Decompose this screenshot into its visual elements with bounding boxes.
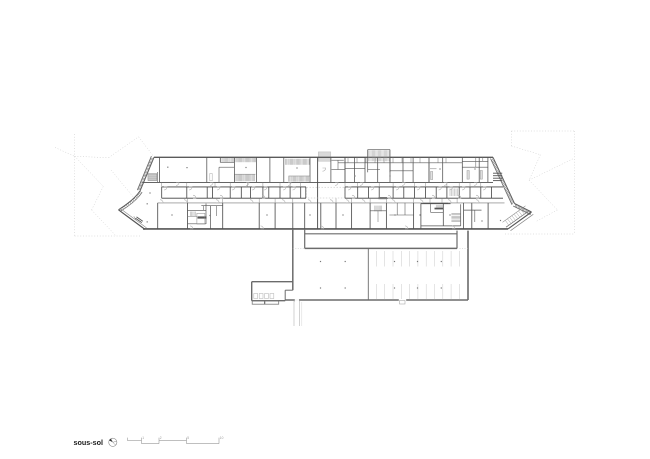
svg-text:5: 5: [187, 436, 189, 440]
svg-text:2: 2: [160, 436, 162, 440]
svg-text:10: 10: [220, 436, 224, 440]
svg-text:1: 1: [142, 436, 144, 440]
svg-text:sous-sol: sous-sol: [74, 438, 104, 447]
